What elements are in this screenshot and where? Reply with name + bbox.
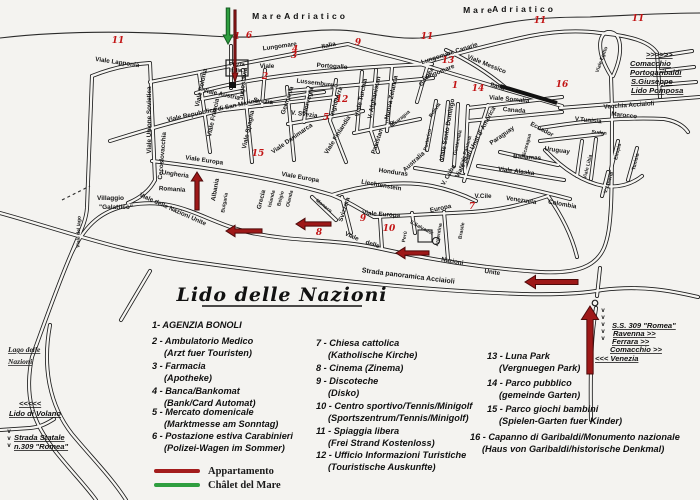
direction-sign: Comacchio >> [610,345,662,354]
road [121,271,150,320]
location-number: 8 [316,228,323,238]
street-label: Villaggio [97,195,124,202]
road [600,32,620,110]
street-label: Olanda [285,190,295,208]
street-label: Romania [159,185,187,194]
legend-key-label: Châlet del Mare [208,480,281,491]
location-number: 9 [360,214,367,224]
chalet-del-mare-arrow [223,8,233,44]
street-label: Viale Europa [362,210,401,220]
street-label: Viale Alaska [498,166,535,177]
legend-item: 6 - Postazione estiva Carabinieri [152,431,293,441]
chevron-mark: v [601,308,605,314]
legend-item-translation: (gemeinde Garten) [499,390,580,400]
street-label: Belgio [276,191,286,207]
chevron-mark: v [7,436,11,442]
route-arrow [296,218,331,229]
location-number: 5 [323,113,329,123]
legend-item-translation: (Marktmesse am Sonntag) [164,419,278,429]
legend-item-translation: (Katholische Kirche) [328,350,417,360]
street-label: Canada [502,106,526,115]
street-label: Bahamas [513,153,542,162]
legend-item: 8 - Cinema (Zinema) [316,363,403,373]
direction-sign: Lido Pomposa [631,86,683,95]
street-label: Viale [344,230,361,243]
legend-item-translation: (Apotheke) [164,373,212,383]
location-number: 10 [383,224,396,234]
legend-item: 16 - Capanno di Garibaldi/Monumento nazi… [470,432,680,442]
legend-item: 5 - Mercato domenicale [152,407,254,417]
legend: 1- AGENZIA BONOLI2 - Ambulatorio Medico(… [151,320,680,491]
legend-item: 1- AGENZIA BONOLI [152,320,242,330]
location-number: 6 [246,31,253,41]
location-number: 3 [291,51,297,61]
street-label: Unite [484,268,501,277]
street-label: Mare [463,5,495,15]
legend-item-translation: (Disko) [328,388,359,398]
legend-item: 4 - Banca/Bankomat [151,386,241,396]
ss309-arrow [581,306,598,374]
location-number: 16 [556,80,569,90]
direction-sign: Strada Statale [14,433,65,442]
map-page: MareAdriaticoMareAdriaticoViale Lapponia… [0,0,700,500]
direction-sign: <<< Venezia [595,354,638,363]
location-number: 11 [112,36,125,46]
legend-item: 14 - Parco pubblico [487,378,572,388]
legend-key-label: Appartamento [208,466,274,477]
street-label: Nazioni [441,256,465,267]
street-label: Viale Spagna [241,109,256,149]
map-canvas: MareAdriaticoMareAdriaticoViale Lapponia… [0,0,700,500]
page-title: Lido delle Nazioni [175,284,387,306]
road [29,252,96,500]
chevron-mark: v [7,443,11,449]
street-label: Etiopia [613,143,623,161]
location-number: 14 [472,84,485,94]
street-label: Viale [260,63,275,70]
legend-item: 11 - Spiaggia libera [316,426,399,436]
street-label: Perù [401,231,409,243]
chevron-mark: v [601,315,605,321]
legend-item: 7 - Chiesa cattolica [316,338,399,348]
location-number: 11 [632,14,645,24]
route-arrow [191,172,202,210]
legend-item-translation: (Frei Strand Kostenloss) [328,438,435,448]
location-number: 11 [534,16,547,26]
direction-sign: Nazioni [7,357,33,366]
legend-item: 3 - Farmacia [152,361,206,371]
direction-sign: Lago delle [7,345,41,354]
street-label: Ungheria [161,169,189,180]
street-label: Albania [210,177,221,201]
direction-sign: Portogaribaldi [630,68,682,77]
legend-item-translation: (Sportszentrum/Tennis/Minigolf) [328,413,469,423]
coastline-path [0,13,700,38]
legend-item: 15 - Parco giochi bambini [487,404,599,414]
location-number: 1 [452,81,458,91]
direction-sign: Comacchio [630,59,671,68]
legend-item: 9 - Discoteche [316,376,378,386]
street-label: Paraguay [489,124,517,146]
street-label: Bulgaria [220,192,229,213]
street-label: Italia [321,41,337,51]
street-label: Viale del lago [75,216,82,248]
direction-sign: S.Giuseppe [631,77,674,86]
location-number: 2 [261,72,268,82]
legend-item-translation: (Arzt fuer Touristen) [164,348,252,358]
roundabout-dot [592,300,598,306]
legend-item-translation: (Spielen-Garten fuer Kinder) [499,416,622,426]
street-label: Viale Unione Sovietica [146,86,153,154]
street-label: Mare [252,11,284,21]
street-label: Tunisia [631,153,641,171]
location-number: 9 [355,38,362,48]
street-label: Figi [386,120,395,126]
location-number: 7 [469,202,476,212]
direction-sign: <<<<< [19,399,42,408]
street-label: Bolivia [428,102,442,119]
street-label: Ecuador [529,121,555,139]
street-label: V.Cile [475,193,492,200]
chevron-mark: v [601,329,605,335]
direction-sign: >>>>>> [646,50,673,59]
street-label: Brasile [458,222,467,240]
street-label: Portorico [423,128,433,151]
legend-item: 2 - Ambulatorio Medico [151,336,254,346]
legend-item-translation: (Touristische Auskunfte) [328,462,436,472]
location-number: 11 [421,32,434,42]
chevron-mark: v [601,322,605,328]
street-label: Liechtenstein [361,179,402,193]
location-number: 15 [252,149,265,159]
street-label: Italia [490,81,506,92]
legend-item: 13 - Luna Park [487,351,551,361]
route-arrow [525,275,578,288]
legend-item: 12 - Ufficio Informazioni Turistiche [316,450,466,460]
street-label: Argentina [434,223,444,247]
legend-item-translation: (Polizei-Wagen im Sommer) [164,443,285,453]
street-label: Viale Francia [206,98,221,138]
chevron-mark: v [601,336,605,342]
street-label: Grecia [256,189,268,210]
road [332,183,476,201]
street-label: "Galattico" [99,204,133,211]
legend-item-translation: (Haus von Garibaldi/historische Denkmal) [482,444,664,454]
legend-item: 10 - Centro sportivo/Tennis/Minigolf [316,401,473,411]
legend-item-translation: (Vergnuegen Park) [499,363,580,373]
street-label: Colombia [548,199,578,211]
street-label: Monaco [314,198,333,214]
direction-sign: n.309 "Romea" [14,442,68,451]
location-number: 12 [336,95,349,105]
street-label: Adriatico [284,11,348,21]
street-label: Adriatico [492,4,556,14]
location-number: 13 [442,56,455,66]
direction-sign: Lido di Volano [9,409,61,418]
